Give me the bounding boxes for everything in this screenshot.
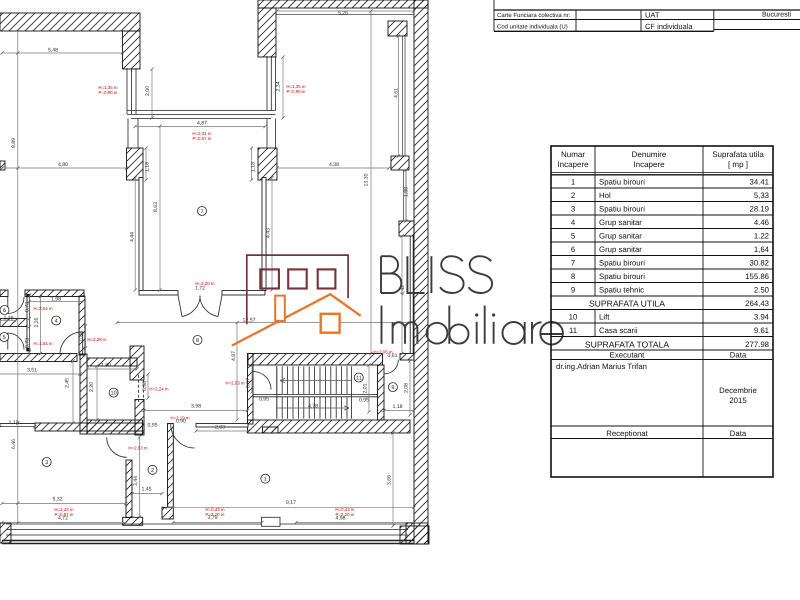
svg-text:4,80: 4,80 [58,162,68,168]
svg-text:Spatiu birouri: Spatiu birouri [599,178,645,187]
svg-text:Casa scarii: Casa scarii [599,326,638,335]
svg-text:4,61: 4,61 [394,88,400,98]
svg-text:1,18: 1,18 [392,404,402,410]
svg-text:H=2,03 m: H=2,03 m [128,446,148,451]
svg-text:30.82: 30.82 [749,259,769,268]
svg-text:3,66: 3,66 [387,475,393,485]
svg-text:0,88: 0,88 [79,331,85,341]
svg-text:Grup sanitar: Grup sanitar [599,232,642,241]
svg-text:7: 7 [200,209,203,215]
svg-text:2,08: 2,08 [404,383,410,393]
svg-text:13,30: 13,30 [364,173,370,186]
svg-text:8: 8 [571,272,575,281]
svg-text:Lift: Lift [599,313,610,322]
svg-text:5: 5 [3,335,6,341]
svg-text:11: 11 [356,376,362,382]
svg-text:Data: Data [730,429,747,438]
svg-text:P=2,20 m: P=2,20 m [206,512,225,517]
svg-text:UAT: UAT [645,11,660,20]
svg-text:1,19: 1,19 [8,420,18,426]
svg-text:5: 5 [571,232,576,241]
svg-text:8,63: 8,63 [153,202,159,212]
svg-text:Suprafata utila: Suprafata utila [712,150,764,159]
svg-text:0,87: 0,87 [246,378,252,388]
svg-text:SUPRAFATA TOTALA: SUPRAFATA TOTALA [585,340,669,350]
svg-text:Executant: Executant [610,350,646,359]
svg-text:1,98: 1,98 [51,297,61,303]
svg-text:Incapere: Incapere [633,160,665,169]
svg-text:Grup sanitar: Grup sanitar [599,218,642,227]
svg-text:dr.ing.Adrian Marius Trifan: dr.ing.Adrian Marius Trifan [556,362,647,371]
svg-text:Hol: Hol [599,191,611,200]
svg-text:4: 4 [55,319,58,325]
svg-text:10: 10 [111,391,117,397]
svg-text:Incapere: Incapere [557,160,589,169]
svg-text:9: 9 [571,286,575,295]
svg-text:0,95: 0,95 [147,423,157,429]
svg-text:Carte Funciara colectiva nr:: Carte Funciara colectiva nr: [497,12,571,19]
svg-text:2,34: 2,34 [276,81,282,91]
svg-text:P=2,20 m: P=2,20 m [336,512,355,517]
svg-text:6: 6 [571,245,575,254]
svg-text:H=2,28 m: H=2,28 m [87,337,107,342]
svg-text:0,73: 0,73 [25,302,31,312]
svg-text:6,46: 6,46 [11,439,17,449]
svg-text:3,44: 3,44 [133,476,139,486]
svg-text:4,43: 4,43 [266,228,272,238]
svg-text:3.94: 3.94 [754,313,770,322]
svg-text:0,95: 0,95 [259,397,269,403]
svg-text:Spatiu birouri: Spatiu birouri [599,272,645,281]
svg-text:Cod unitate individuala (U): Cod unitate individuala (U) [497,24,568,31]
svg-text:5,33: 5,33 [754,191,769,200]
svg-text:2: 2 [151,468,154,474]
svg-text:10: 10 [569,313,578,322]
svg-text:1,45: 1,45 [141,487,151,493]
svg-text:Data: Data [730,350,747,359]
svg-text:1,80: 1,80 [101,363,111,369]
svg-text:H=2,24 m: H=2,24 m [149,387,169,392]
svg-text:4,87: 4,87 [231,351,237,361]
svg-text:4.46: 4.46 [754,218,769,227]
svg-text:9: 9 [391,385,394,391]
svg-text:Bucuresti: Bucuresti [762,11,792,19]
svg-text:CF individuala: CF individuala [645,22,693,31]
svg-text:2015: 2015 [729,396,747,405]
svg-text:12,57: 12,57 [243,318,256,324]
svg-text:Decembrie: Decembrie [719,386,757,395]
svg-text:H=2,19 m: H=2,19 m [170,416,190,421]
svg-text:3,98: 3,98 [191,404,201,410]
svg-text:0,73: 0,73 [25,338,31,348]
svg-text:0,95: 0,95 [359,398,369,404]
svg-text:Spatiu tehnic: Spatiu tehnic [599,286,644,295]
svg-text:Spatiu birouri: Spatiu birouri [599,205,645,214]
svg-text:2,03: 2,03 [215,425,225,431]
svg-text:H=2,04 m: H=2,04 m [33,306,53,311]
svg-text:P=0,57 m: P=0,57 m [193,136,212,141]
svg-text:1: 1 [264,477,267,483]
svg-text:8: 8 [196,338,199,344]
svg-text:28.19: 28.19 [749,205,769,214]
svg-text:11: 11 [569,326,577,335]
svg-text:H=2,03 m: H=2,03 m [225,381,245,386]
svg-text:9,17: 9,17 [286,500,296,506]
svg-text:264,43: 264,43 [745,299,769,308]
svg-text:2,01: 2,01 [363,383,369,393]
svg-text:Denumire: Denumire [632,150,667,159]
svg-text:P=0,87 m: P=0,87 m [55,512,74,517]
svg-text:2,45: 2,45 [65,378,71,388]
svg-text:6: 6 [3,308,6,314]
svg-text:3: 3 [571,205,575,214]
svg-text:9.61: 9.61 [754,326,769,335]
svg-text:P=0,90 m: P=0,90 m [99,90,118,95]
svg-text:4,38: 4,38 [329,162,339,168]
svg-text:34.41: 34.41 [749,178,769,187]
svg-text:1,18: 1,18 [145,162,151,172]
svg-text:1,88: 1,88 [404,187,410,197]
svg-text:P=0,90 m: P=0,90 m [287,89,306,94]
svg-text:155.86: 155.86 [745,272,769,281]
svg-text:1.22: 1.22 [754,232,769,241]
svg-text:5,26: 5,26 [338,11,348,17]
svg-text:1: 1 [571,178,575,187]
svg-text:9,89: 9,89 [11,138,17,148]
svg-text:0,98: 0,98 [142,381,148,391]
svg-text:4: 4 [571,218,576,227]
svg-text:4,87: 4,87 [197,121,207,127]
svg-text:277.98: 277.98 [745,340,769,349]
svg-text:3,51: 3,51 [27,368,37,374]
svg-text:H=2,06 m: H=2,06 m [373,350,393,355]
svg-text:2.50: 2.50 [754,286,770,295]
svg-text:2,25: 2,25 [34,317,40,327]
svg-text:[ mp ]: [ mp ] [728,160,748,169]
svg-text:1,39: 1,39 [3,316,13,322]
svg-text:4,44: 4,44 [130,232,136,242]
svg-text:Receptionat: Receptionat [606,429,648,438]
svg-text:H=2,20 m: H=2,20 m [195,281,215,286]
svg-text:Numar: Numar [561,150,585,159]
svg-text:1,72: 1,72 [195,286,205,292]
svg-text:7: 7 [571,259,575,268]
svg-text:1,64: 1,64 [754,245,770,254]
svg-text:4,78: 4,78 [308,404,318,410]
svg-text:Spatiu birouri: Spatiu birouri [599,259,645,268]
svg-text:2,00: 2,00 [145,86,151,96]
svg-text:3: 3 [45,460,48,466]
svg-text:2,20: 2,20 [89,382,95,392]
svg-text:5,48: 5,48 [48,48,58,54]
svg-text:SUPRAFATA UTILA: SUPRAFATA UTILA [589,299,665,309]
svg-text:H=1,04 m: H=1,04 m [33,341,53,346]
svg-text:Grup sanitar: Grup sanitar [599,245,642,254]
svg-text:2: 2 [571,191,575,200]
svg-text:1,18: 1,18 [251,162,257,172]
svg-text:5,32: 5,32 [52,497,62,503]
